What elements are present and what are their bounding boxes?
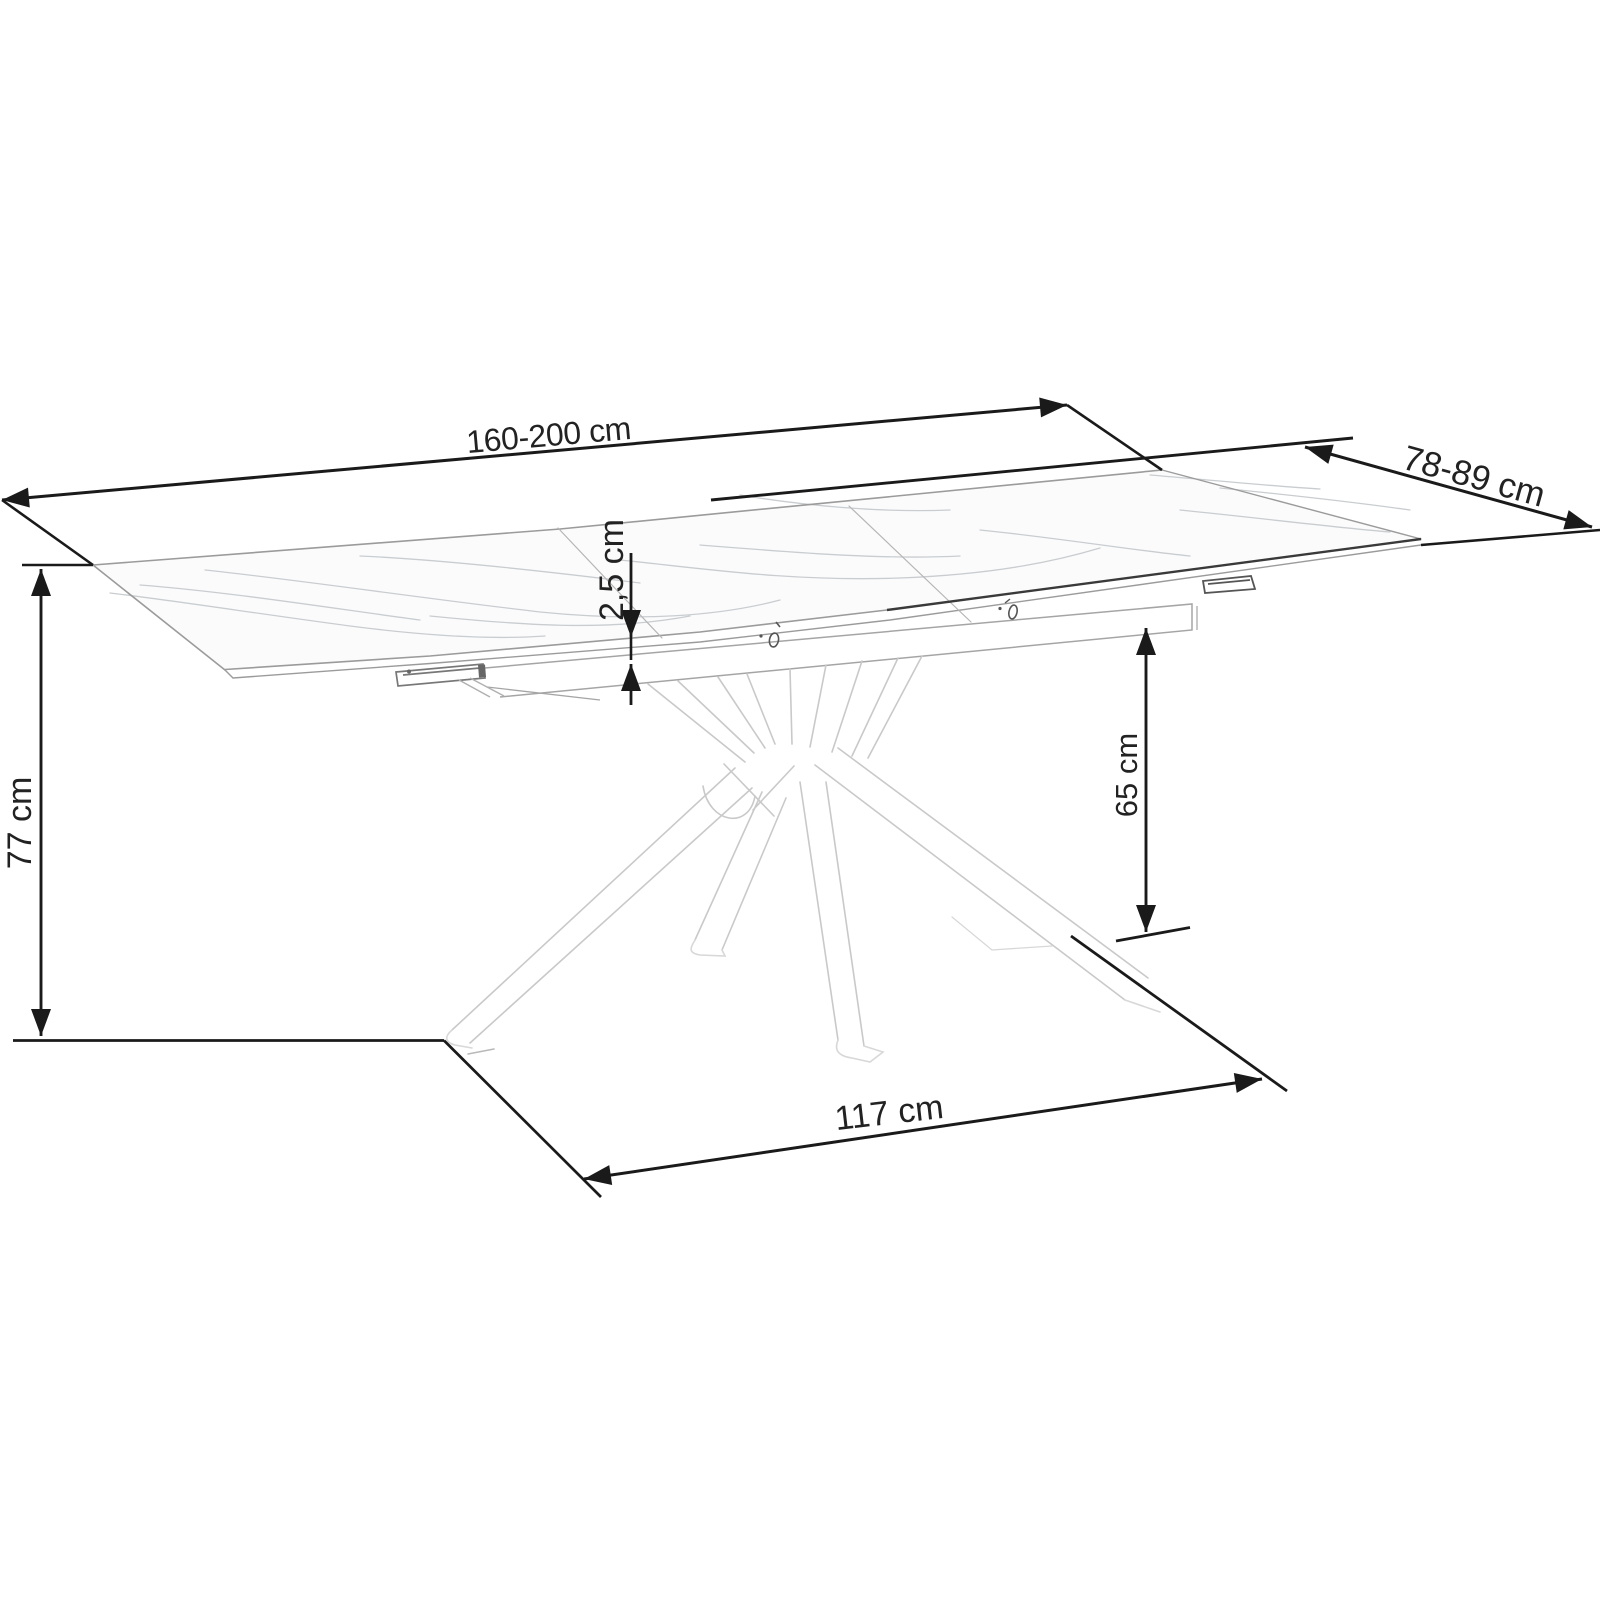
svg-text:77 cm: 77 cm xyxy=(1,777,39,870)
svg-text:2,5 cm: 2,5 cm xyxy=(593,519,631,621)
svg-text:65 cm: 65 cm xyxy=(1109,733,1144,817)
